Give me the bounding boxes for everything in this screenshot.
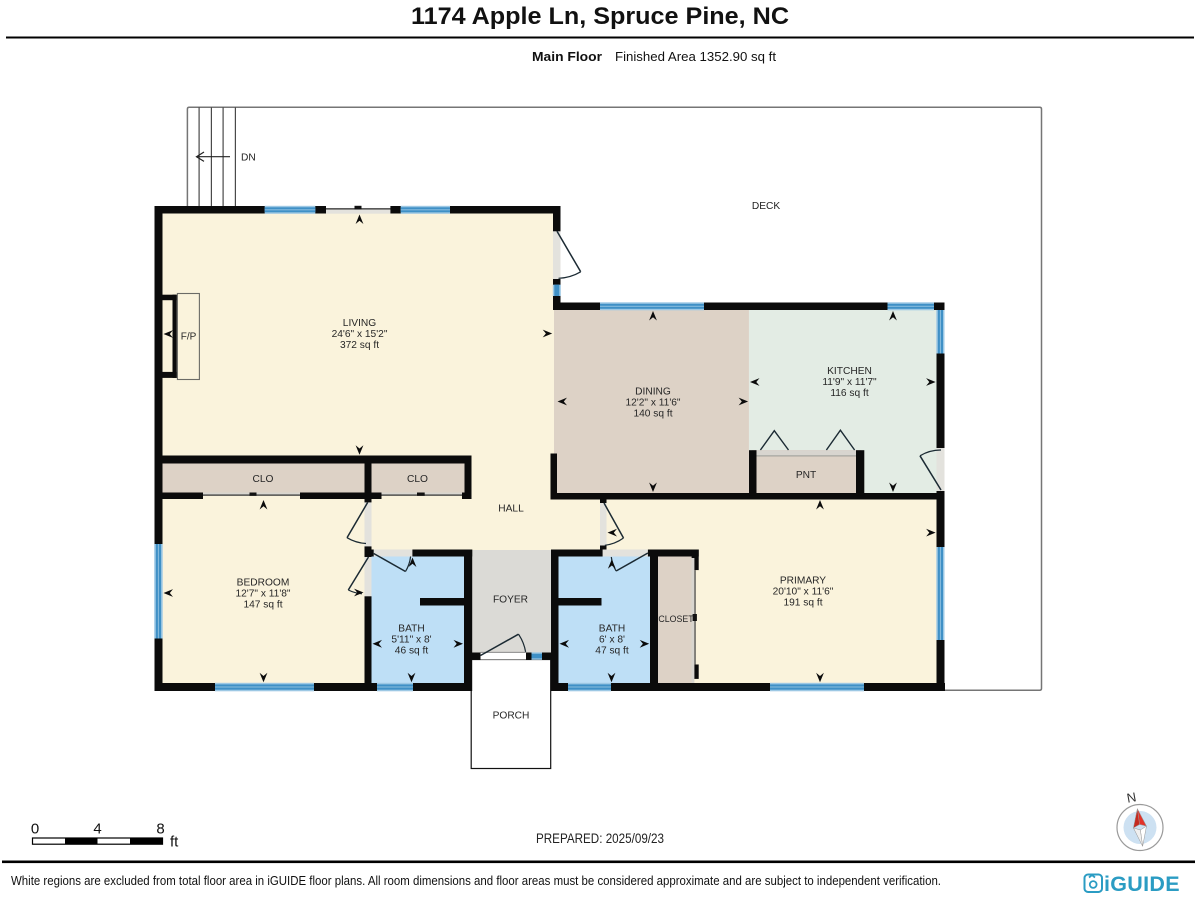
svg-text:12'2" x 11'6": 12'2" x 11'6"	[625, 397, 680, 408]
svg-text:LIVING: LIVING	[343, 318, 376, 329]
svg-text:11'9" x 11'7": 11'9" x 11'7"	[822, 377, 877, 388]
svg-text:12'7" x 11'8": 12'7" x 11'8"	[235, 588, 290, 599]
svg-text:BATH: BATH	[599, 623, 625, 634]
svg-text:5'11" x 8': 5'11" x 8'	[391, 634, 431, 645]
svg-text:147 sq ft: 147 sq ft	[243, 599, 282, 610]
svg-text:47 sq ft: 47 sq ft	[595, 645, 629, 656]
svg-text:DECK: DECK	[752, 201, 781, 212]
svg-text:FOYER: FOYER	[493, 594, 528, 605]
svg-text:CLO: CLO	[407, 474, 428, 485]
svg-text:PRIMARY: PRIMARY	[780, 575, 826, 586]
svg-text:HALL: HALL	[498, 503, 524, 514]
svg-text:20'10" x 11'6": 20'10" x 11'6"	[773, 586, 834, 597]
svg-text:ft: ft	[170, 834, 179, 851]
svg-text:4: 4	[93, 821, 101, 838]
svg-text:BEDROOM: BEDROOM	[237, 577, 290, 588]
svg-text:372 sq ft: 372 sq ft	[340, 340, 379, 351]
svg-text:PNT: PNT	[796, 470, 816, 481]
svg-text:iGUIDE: iGUIDE	[1104, 872, 1180, 896]
svg-text:PORCH: PORCH	[493, 710, 530, 721]
svg-text:Main Floor: Main Floor	[532, 50, 602, 64]
svg-text:46 sq ft: 46 sq ft	[395, 645, 429, 656]
svg-text:White regions are excluded fro: White regions are excluded from total fl…	[11, 873, 941, 888]
svg-text:N: N	[1125, 789, 1137, 805]
svg-text:0: 0	[31, 821, 39, 838]
svg-text:191 sq ft: 191 sq ft	[783, 597, 822, 608]
svg-text:140 sq ft: 140 sq ft	[633, 408, 672, 419]
svg-text:116 sq ft: 116 sq ft	[830, 388, 868, 399]
svg-text:PREPARED: 2025/09/23: PREPARED: 2025/09/23	[536, 831, 664, 846]
svg-text:DN: DN	[241, 153, 256, 164]
svg-text:BATH: BATH	[398, 623, 424, 634]
svg-text:DINING: DINING	[635, 386, 671, 397]
svg-text:Finished Area 1352.90 sq ft: Finished Area 1352.90 sq ft	[615, 50, 777, 64]
svg-text:1174 Apple Ln, Spruce Pine, NC: 1174 Apple Ln, Spruce Pine, NC	[411, 3, 789, 30]
svg-text:KITCHEN: KITCHEN	[827, 366, 872, 377]
svg-text:F/P: F/P	[181, 331, 197, 342]
svg-text:6' x 8': 6' x 8'	[599, 634, 625, 645]
svg-text:8: 8	[156, 821, 164, 838]
svg-text:CLO: CLO	[253, 474, 274, 485]
svg-text:CLOSET: CLOSET	[658, 614, 694, 624]
svg-text:24'6" x 15'2": 24'6" x 15'2"	[332, 329, 388, 340]
